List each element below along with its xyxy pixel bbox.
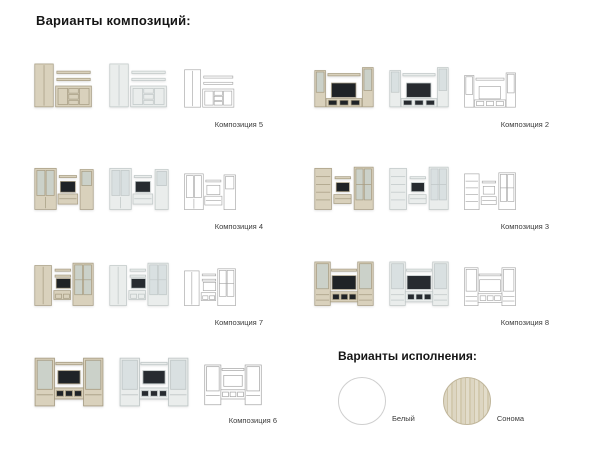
sonoma-finish-circle	[443, 377, 491, 425]
furniture-illustration-white	[388, 160, 450, 216]
variant-row	[33, 160, 269, 216]
furniture-illustration-white	[118, 352, 190, 410]
furniture-illustration-outline	[463, 64, 517, 114]
swatch-row: Белый Сонома	[338, 377, 588, 425]
finishes-heading: Варианты исполнения:	[338, 349, 588, 363]
variant-row	[313, 58, 555, 114]
variant-row	[33, 256, 269, 312]
furniture-illustration-outline	[183, 166, 237, 216]
composition-card-7: Композиция 7	[33, 256, 269, 327]
furniture-illustration-outline	[183, 64, 237, 114]
furniture-illustration-sonoma	[313, 58, 375, 114]
composition-label: Композиция 2	[313, 120, 555, 129]
furniture-illustration-outline	[463, 166, 517, 216]
composition-label: Композиция 3	[313, 222, 555, 231]
furniture-illustration-white	[108, 256, 170, 312]
furniture-illustration-sonoma	[313, 160, 375, 216]
furniture-illustration-outline	[183, 262, 237, 312]
composition-label: Композиция 8	[313, 318, 555, 327]
composition-label: Композиция 6	[33, 416, 283, 425]
furniture-illustration-white	[388, 256, 450, 312]
furniture-illustration-white	[108, 58, 170, 114]
composition-card-5: Композиция 5	[33, 58, 269, 129]
composition-card-3: Композиция 3	[313, 160, 555, 231]
finish-swatch-sonoma: Сонома	[443, 377, 524, 425]
furniture-illustration-sonoma	[33, 352, 105, 410]
finish-label: Сонома	[497, 414, 524, 425]
variant-row	[313, 256, 555, 312]
composition-card-4: Композиция 4	[33, 160, 269, 231]
furniture-illustration-white	[388, 58, 450, 114]
furniture-illustration-sonoma	[33, 160, 95, 216]
variant-row	[313, 160, 555, 216]
composition-card-8: Композиция 8	[313, 256, 555, 327]
composition-label: Композиция 7	[33, 318, 269, 327]
furniture-illustration-sonoma	[33, 58, 95, 114]
composition-card-2: Композиция 2	[313, 58, 555, 129]
furniture-illustration-outline	[203, 358, 263, 410]
catalog-page: Варианты композиций: Композиция 5 Композ…	[0, 0, 600, 450]
composition-label: Композиция 4	[33, 222, 269, 231]
composition-card-6: Композиция 6	[33, 352, 283, 425]
compositions-heading: Варианты композиций:	[36, 13, 191, 28]
variant-row	[33, 352, 283, 410]
finish-label: Белый	[392, 414, 415, 425]
furniture-illustration-outline	[463, 262, 517, 312]
variant-row	[33, 58, 269, 114]
furniture-illustration-sonoma	[33, 256, 95, 312]
furniture-illustration-sonoma	[313, 256, 375, 312]
composition-label: Композиция 5	[33, 120, 269, 129]
furniture-illustration-white	[108, 160, 170, 216]
white-finish-circle	[338, 377, 386, 425]
finishes-section: Варианты исполнения: Белый Сонома	[338, 349, 588, 425]
finish-swatch-white: Белый	[338, 377, 415, 425]
